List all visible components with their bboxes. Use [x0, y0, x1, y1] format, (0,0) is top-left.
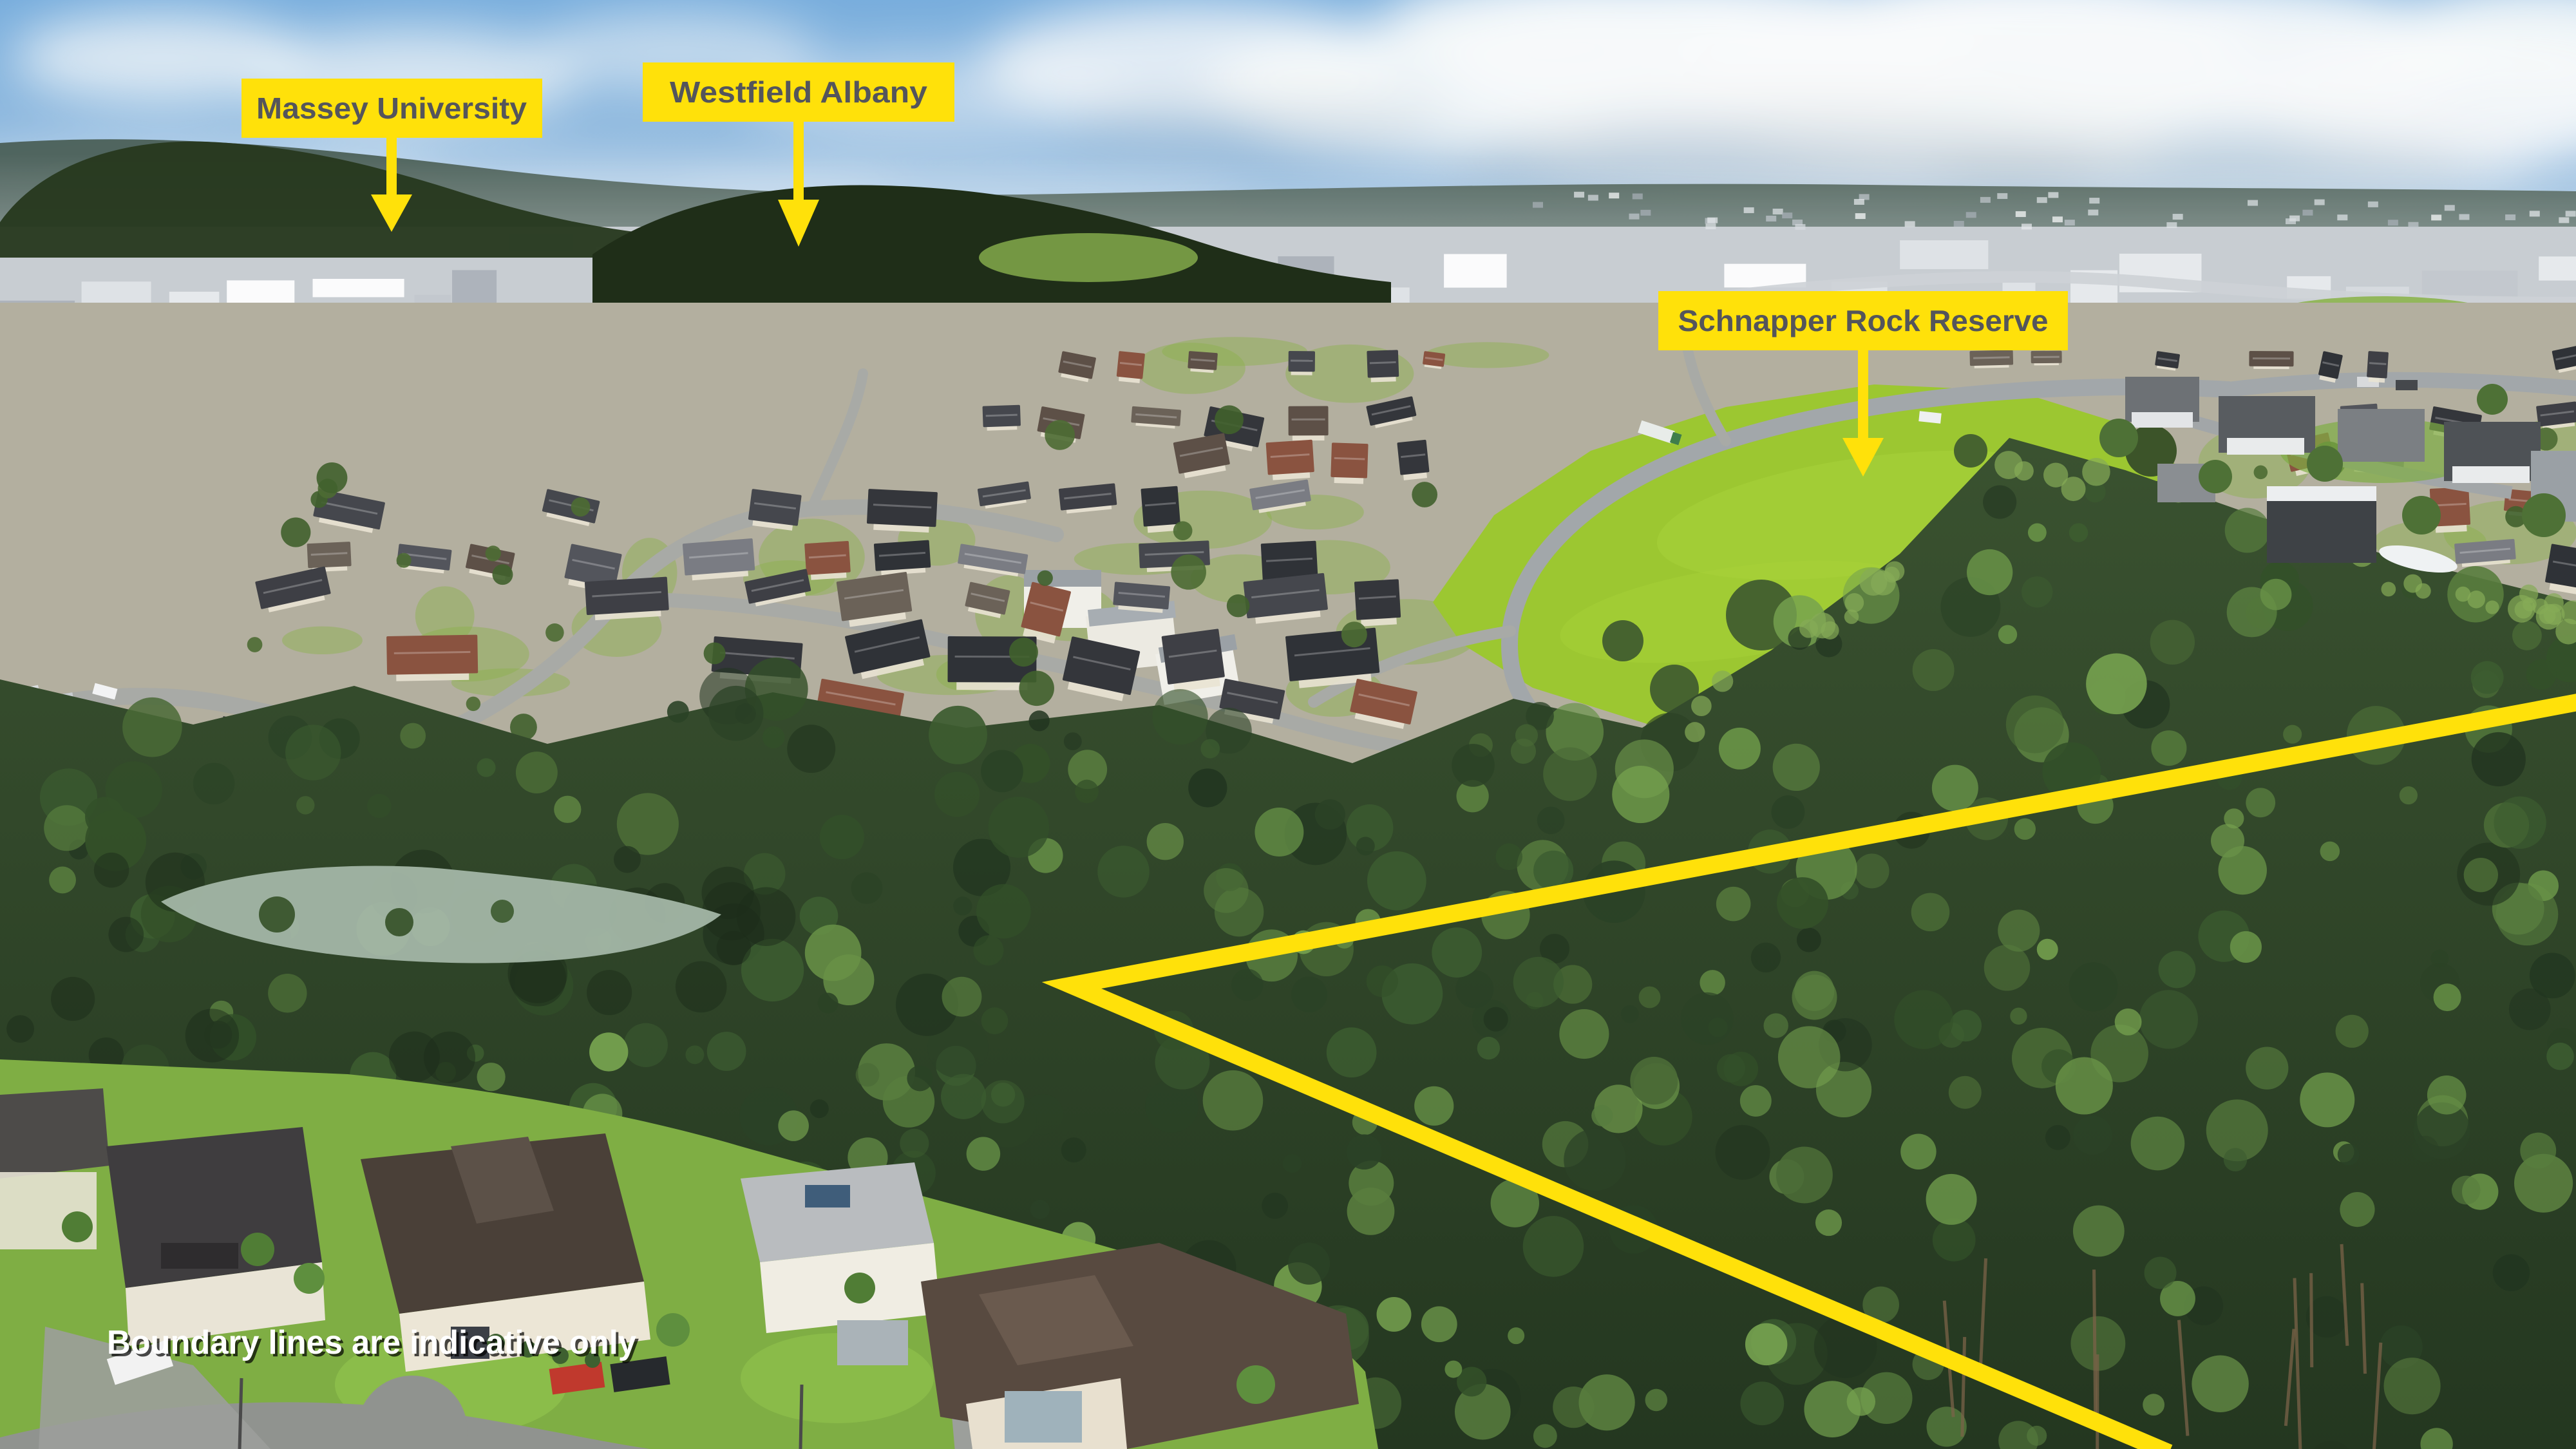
label-text: Westfield Albany [670, 75, 927, 109]
arrow-stem [793, 120, 804, 201]
arrow-stem [1858, 349, 1868, 439]
label-text: Massey University [256, 91, 527, 125]
arrow-stem [386, 137, 397, 196]
aerial-photo: Massey University Westfield Albany Schna… [0, 0, 2576, 1449]
disclaimer: Boundary lines are indicative only Bound… [107, 1324, 639, 1364]
label-text: Schnapper Rock Reserve [1678, 304, 2049, 337]
aerial-scene: Massey University Westfield Albany Schna… [0, 0, 2576, 1449]
disclaimer-text: Boundary lines are indicative only [107, 1324, 636, 1361]
